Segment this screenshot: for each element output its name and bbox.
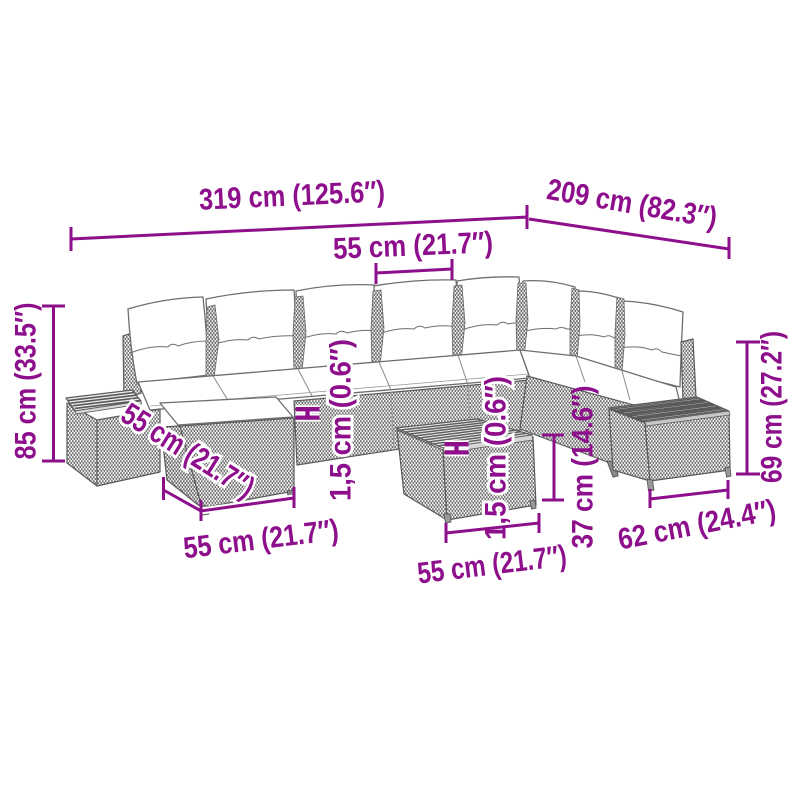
svg-text:1,5 cm (0.6″): 1,5 cm (0.6″): [325, 339, 358, 501]
svg-text:1,5 cm (0.6″): 1,5 cm (0.6″): [480, 376, 513, 540]
svg-text:37 cm (14.6″): 37 cm (14.6″): [567, 386, 600, 549]
svg-text:85 cm (33.5″): 85 cm (33.5″): [10, 303, 43, 460]
svg-text:69 cm (27.2″): 69 cm (27.2″): [756, 331, 789, 483]
svg-text:55 cm (21.7″): 55 cm (21.7″): [332, 226, 493, 266]
